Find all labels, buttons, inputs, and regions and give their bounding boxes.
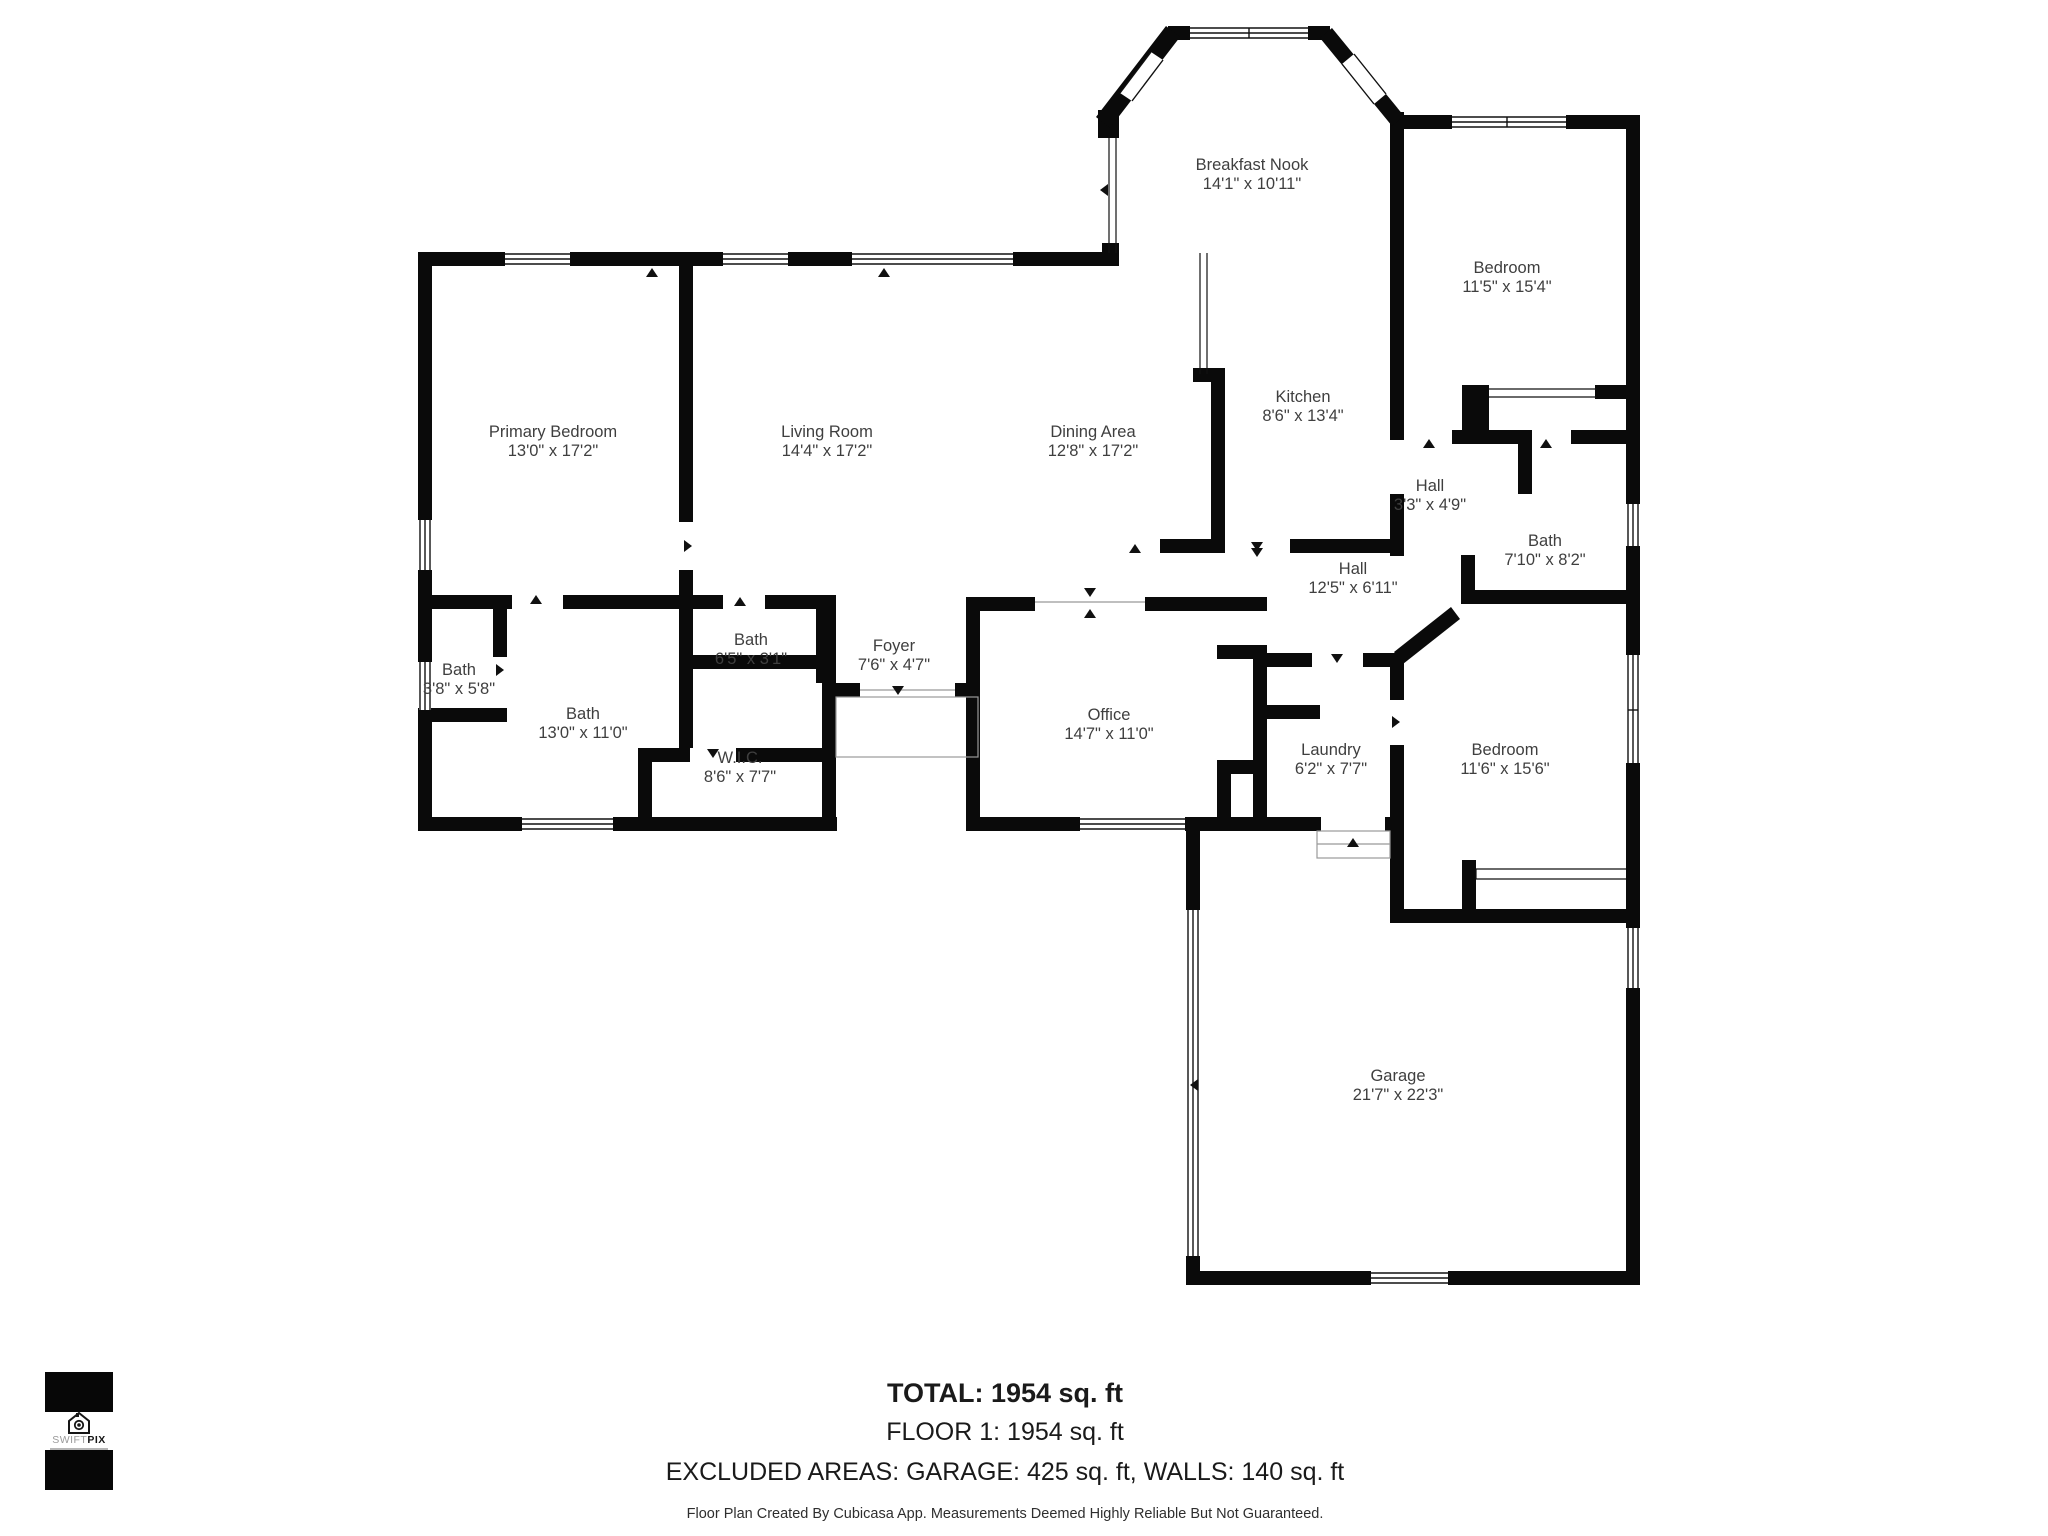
window — [522, 818, 613, 830]
room-dims-16: 11'6" x 15'6" — [1460, 760, 1549, 778]
window — [852, 253, 1013, 265]
window — [1080, 818, 1185, 830]
room-dims-14: 14'7" x 11'0" — [1064, 725, 1153, 743]
swiftpix-logo: SWIFTPIX — [45, 1372, 113, 1490]
disclaimer: Floor Plan Created By Cubicasa App. Meas… — [0, 1506, 2010, 1522]
summary-block: TOTAL: 1954 sq. ft FLOOR 1: 1954 sq. ft … — [0, 1374, 2010, 1522]
excluded-areas: EXCLUDED AREAS: GARAGE: 425 sq. ft, WALL… — [0, 1452, 2010, 1492]
room-dims-10: 6'5" x 3'1" — [715, 650, 787, 668]
floor-plan: Breakfast Nook14'1" x 10'11"Bedroom11'5"… — [0, 0, 2048, 1536]
room-dims-5: 12'8" x 17'2" — [1048, 442, 1139, 460]
window — [419, 520, 431, 570]
logo-block-bottom — [45, 1450, 113, 1490]
room-name-8: Hall — [1339, 560, 1367, 578]
window — [1371, 1272, 1448, 1284]
room-name-17: Garage — [1370, 1067, 1425, 1085]
windows — [419, 116, 1639, 1284]
room-name-16: Bedroom — [1472, 741, 1539, 759]
logo-block-top — [45, 1372, 113, 1412]
room-name-12: Foyer — [873, 637, 916, 655]
room-dims-11: 13'0" x 11'0" — [538, 724, 627, 742]
room-name-5: Dining Area — [1050, 423, 1136, 441]
total-area: TOTAL: 1954 sq. ft — [0, 1374, 2010, 1413]
room-name-1: Bedroom — [1474, 259, 1541, 277]
room-dims-1: 11'5" x 15'4" — [1462, 278, 1551, 296]
window — [1627, 928, 1639, 988]
room-name-7: Bath — [1528, 532, 1562, 550]
room-dims-15: 6'2" x 7'7" — [1295, 760, 1367, 778]
room-dims-3: 13'0" x 17'2" — [508, 442, 599, 460]
room-dims-4: 14'4" x 17'2" — [782, 442, 873, 460]
room-name-4: Living Room — [781, 423, 873, 441]
window — [1627, 655, 1639, 763]
floor-area: FLOOR 1: 1954 sq. ft — [0, 1413, 2010, 1452]
window — [723, 253, 788, 265]
bay-window — [1096, 26, 1404, 128]
walls — [418, 110, 1640, 1285]
front-porch — [836, 697, 978, 757]
room-dims-9: 3'8" x 5'8" — [423, 680, 495, 698]
room-dims-6: 3'3" x 4'9" — [1394, 496, 1466, 514]
room-name-9: Bath — [442, 661, 476, 679]
entry-door-arrow — [1347, 838, 1359, 847]
brand-name: SWIFTPIX — [52, 1435, 106, 1446]
room-dims-8: 12'5" x 6'11" — [1308, 579, 1397, 597]
window — [1627, 504, 1639, 546]
room-dims-17: 21'7" x 22'3" — [1353, 1086, 1444, 1104]
room-name-10: Bath — [734, 631, 768, 649]
window — [1452, 116, 1566, 128]
room-name-0: Breakfast Nook — [1196, 156, 1310, 174]
house-camera-icon — [67, 1412, 91, 1434]
room-dims-2: 8'6" x 13'4" — [1262, 407, 1343, 425]
room-dims-0: 14'1" x 10'11" — [1203, 175, 1302, 193]
room-dims-7: 7'10" x 8'2" — [1504, 551, 1585, 569]
room-name-14: Office — [1088, 706, 1131, 724]
room-labels: Breakfast Nook14'1" x 10'11"Bedroom11'5"… — [423, 156, 1586, 1104]
room-name-15: Laundry — [1301, 741, 1361, 759]
room-dims-13: 8'6" x 7'7" — [704, 768, 776, 786]
window — [505, 253, 570, 265]
room-name-13: W.I.C. — [718, 749, 763, 767]
logo-tagline — [50, 1448, 108, 1450]
room-name-11: Bath — [566, 705, 600, 723]
room-name-6: Hall — [1416, 477, 1444, 495]
room-name-3: Primary Bedroom — [489, 423, 617, 441]
room-name-2: Kitchen — [1275, 388, 1330, 406]
room-dims-12: 7'6" x 4'7" — [858, 656, 930, 674]
